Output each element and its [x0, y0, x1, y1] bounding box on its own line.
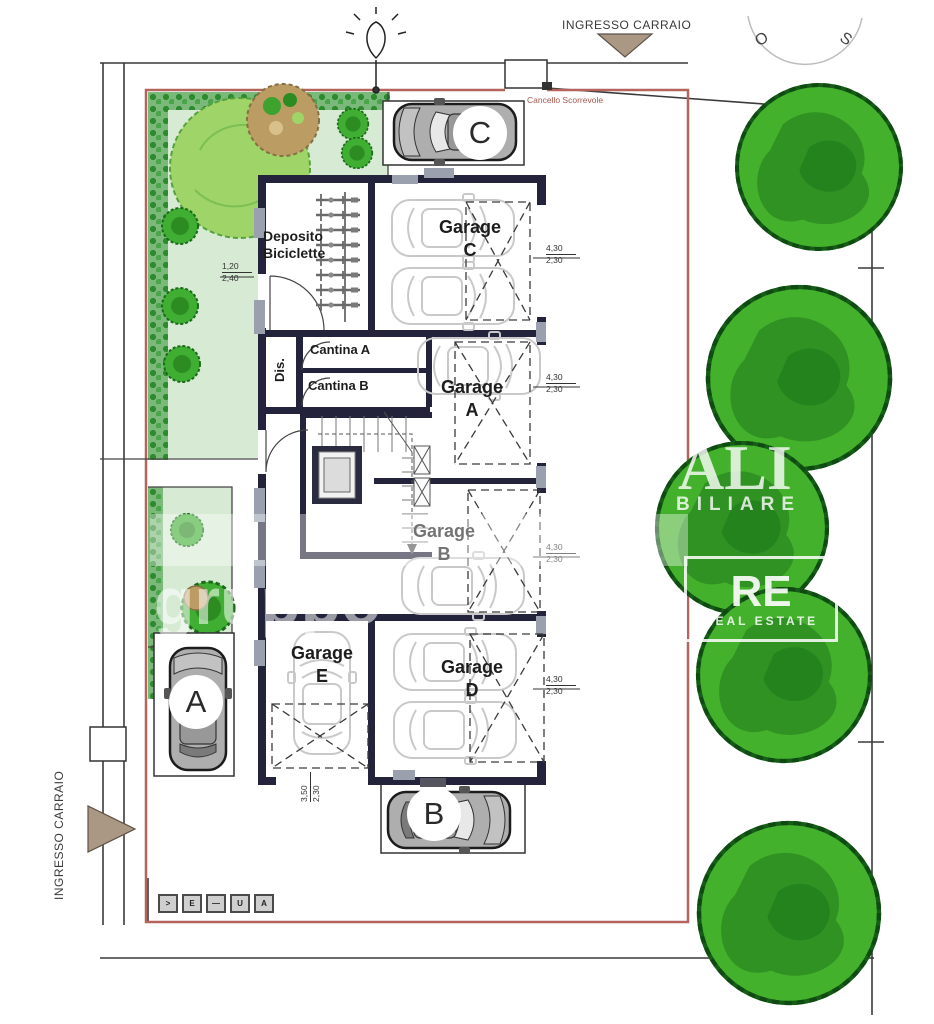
utility-boxes: > E — U A: [158, 894, 274, 913]
sliding-gate: [505, 60, 552, 90]
dim-garage-c: 4,302,30: [546, 244, 576, 265]
compass-icon: O S: [748, 16, 862, 64]
cantina-a-label: Cantina A: [310, 342, 370, 357]
watermark-re: RE: [730, 570, 791, 614]
utility-box-3: —: [206, 894, 226, 913]
watermark-biliare: BILIARE: [676, 494, 801, 516]
watermark-real-estate: REAL ESTATE: [704, 614, 818, 628]
deposito-line1: Deposito: [263, 228, 325, 245]
watermark-word-fragment: ALI: [678, 436, 792, 500]
site-plan: O S: [0, 0, 934, 1024]
garage-e-label: GarageE: [280, 642, 364, 689]
dim-garage-a: 4,302,30: [546, 373, 576, 394]
parking-badge-c: C: [453, 106, 507, 160]
deposito-biciclette-label: Deposito Biciclette: [263, 228, 325, 261]
ingresso-carraio-left-label: INGRESSO CARRAIO: [52, 766, 66, 900]
utility-box-4: U: [230, 894, 250, 913]
watermark-re-box: RE REAL ESTATE: [684, 556, 838, 642]
parking-badge-b: B: [407, 787, 461, 841]
garage-d-label: GarageD: [426, 656, 518, 703]
parking-badge-a: A: [169, 675, 223, 729]
cantina-b-label: Cantina B: [308, 378, 369, 393]
dim-window: 1,202,40: [222, 262, 252, 283]
dim-garage-d: 4,302,30: [546, 675, 576, 696]
dis-label: Dis.: [272, 340, 287, 382]
arrow-ingresso-left: [88, 806, 135, 852]
cancello-scorrevole-label: Cancello Scorrevole: [527, 95, 603, 105]
left-gate: [90, 727, 126, 761]
trees-right: [657, 85, 901, 1003]
utility-box-5: A: [254, 894, 274, 913]
utility-box-1: >: [158, 894, 178, 913]
compass-south: S: [837, 29, 855, 49]
garage-c-label: GarageC: [424, 216, 516, 263]
watermark-gruppo: gruppo: [154, 568, 381, 634]
ingresso-carraio-top-label: INGRESSO CARRAIO: [562, 18, 691, 32]
arrow-ingresso-top: [598, 34, 652, 57]
elevator: [312, 446, 362, 504]
compass-west: O: [752, 29, 772, 50]
watermark-band: [150, 514, 688, 566]
lamp-icon: [346, 7, 406, 93]
garage-a-label: GarageA: [426, 376, 518, 423]
utility-box-2: E: [182, 894, 202, 913]
dim-garage-e: 3,502,30: [300, 772, 321, 802]
deposito-line2: Biciclette: [263, 245, 325, 262]
